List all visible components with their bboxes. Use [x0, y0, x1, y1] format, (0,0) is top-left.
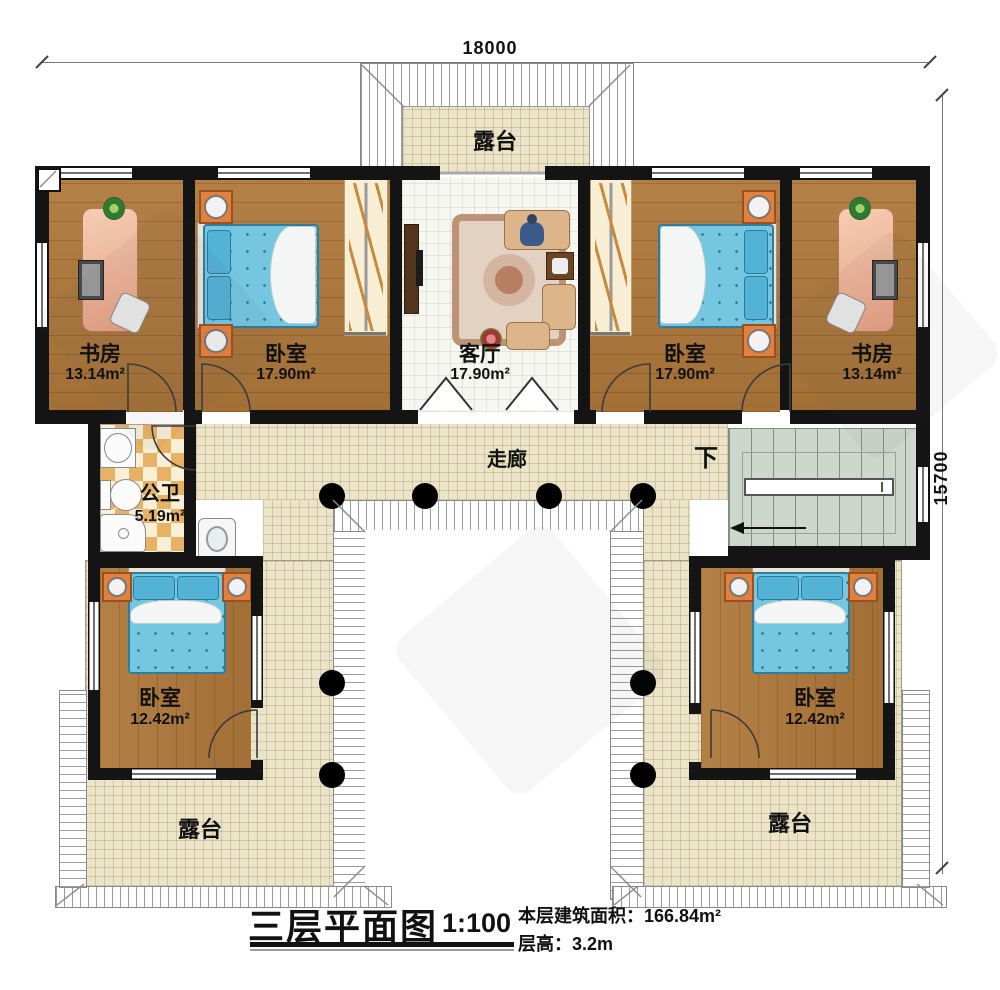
- window: [218, 166, 310, 180]
- nightstand-icon: [102, 572, 132, 602]
- bathroom-area: 5.19m²: [117, 508, 203, 526]
- floor-height-value: 3.2m: [572, 934, 613, 954]
- wall: [574, 410, 596, 424]
- wall: [251, 556, 263, 616]
- wall: [872, 166, 930, 180]
- window: [689, 612, 701, 703]
- column: [412, 483, 438, 509]
- wardrobe-left-edge: [344, 332, 386, 335]
- pillow: [744, 276, 768, 320]
- title-underline-shadow: [250, 949, 514, 951]
- corridor-label: 走廊: [447, 450, 567, 471]
- study-left-label: 书房: [40, 344, 160, 366]
- nightstand-icon: [848, 572, 878, 602]
- bedroom-lower-left-area: 12.42m²: [105, 711, 215, 729]
- courtyard-eave-top: [333, 500, 644, 532]
- dimension-right-label: 15700: [931, 430, 951, 526]
- duvet: [754, 600, 846, 624]
- nightstand-icon: [222, 572, 252, 602]
- dimension-top-label: 18000: [430, 38, 550, 58]
- pillow: [801, 576, 843, 600]
- corridor-left-leg: [263, 500, 333, 562]
- person-icon: [520, 222, 544, 246]
- wall: [883, 556, 895, 612]
- column: [630, 762, 656, 788]
- study-left-area: 13.14m²: [35, 366, 155, 384]
- nightstand-icon: [742, 190, 776, 224]
- terrace-bottom-right-label: 露台: [740, 806, 840, 838]
- wall: [689, 556, 895, 568]
- wardrobe-left: [344, 178, 388, 336]
- shower-drain: [118, 528, 129, 539]
- bedroom-lower-left-label: 卧室: [110, 688, 210, 710]
- wall: [644, 410, 742, 424]
- nightstand-icon: [724, 572, 754, 602]
- courtyard-eave-left: [333, 500, 367, 900]
- title-underline: [250, 942, 514, 947]
- floor-area-label: 本层建筑面积：: [518, 906, 644, 926]
- window: [800, 166, 872, 180]
- wall: [578, 178, 590, 410]
- window: [88, 602, 100, 690]
- pillow: [177, 576, 219, 600]
- bedroom-upper-left-label: 卧室: [226, 344, 346, 366]
- column: [536, 483, 562, 509]
- terrace-bottom-left-label: 露台: [150, 812, 250, 844]
- floor-plan: 18000 15700 露台 下: [0, 0, 1000, 990]
- wall: [780, 178, 792, 410]
- floor-height-label: 层高：: [518, 934, 572, 954]
- wall: [216, 768, 263, 780]
- floor-area-row: 本层建筑面积：166.84m²: [518, 902, 721, 928]
- drawing-scale: 1:100: [442, 908, 511, 939]
- wall: [390, 178, 402, 410]
- column: [630, 483, 656, 509]
- window: [251, 616, 263, 700]
- column: [319, 670, 345, 696]
- living-room-area: 17.90m²: [420, 366, 540, 384]
- plant-icon: [849, 197, 871, 220]
- pillow: [744, 230, 768, 274]
- nightstand-icon: [199, 190, 233, 224]
- window: [770, 768, 856, 780]
- wardrobe-right: [590, 178, 632, 336]
- stairs-down-label: 下: [694, 438, 728, 466]
- tv-icon: [416, 250, 423, 286]
- corner-notch: [37, 168, 61, 192]
- bedroom-upper-right-area: 17.90m²: [625, 366, 745, 384]
- sink-icon: [104, 433, 132, 463]
- study-right-area: 13.14m²: [812, 366, 932, 384]
- bedroom-upper-right-label: 卧室: [625, 344, 745, 366]
- side-table: [546, 252, 574, 280]
- wall: [88, 556, 263, 568]
- window: [652, 166, 744, 180]
- bedroom-upper-left-area: 17.90m²: [226, 366, 346, 384]
- window: [916, 467, 930, 522]
- pillow: [757, 576, 799, 600]
- study-right-label: 书房: [812, 344, 932, 366]
- floor-area-value: 166.84m²: [644, 906, 721, 926]
- wall: [88, 556, 100, 602]
- duvet: [130, 600, 222, 624]
- stair-handrail: [744, 478, 894, 496]
- duvet: [270, 226, 316, 324]
- wall: [88, 690, 100, 780]
- wall: [689, 556, 701, 612]
- wall: [545, 166, 652, 180]
- eave-right-side: [902, 690, 930, 888]
- wall: [310, 166, 440, 180]
- wall: [88, 768, 132, 780]
- column: [319, 483, 345, 509]
- window: [60, 166, 132, 180]
- wall: [250, 410, 418, 424]
- nightstand-icon: [742, 324, 776, 358]
- corridor-right-leg: [643, 500, 690, 562]
- window: [883, 612, 895, 703]
- plant-icon: [103, 197, 125, 220]
- wall: [916, 424, 930, 467]
- washing-machine-icon: [198, 518, 236, 560]
- pillow: [133, 576, 175, 600]
- hanger-icons: [595, 183, 627, 331]
- bathroom-label: 公卫: [122, 484, 198, 505]
- living-room-label: 客厅: [420, 344, 540, 366]
- floor-height-row: 层高：3.2m: [518, 930, 613, 956]
- terrace-top-label: 露台: [435, 124, 555, 156]
- wall: [689, 703, 701, 714]
- hanger-icons: [349, 183, 383, 331]
- wall: [856, 768, 895, 780]
- window: [132, 768, 216, 780]
- duvet: [660, 226, 706, 324]
- eave-left-side: [59, 690, 87, 888]
- wall: [251, 700, 263, 708]
- wardrobe-right-edge: [590, 332, 630, 335]
- wall: [88, 424, 100, 564]
- column: [319, 762, 345, 788]
- wall: [689, 768, 770, 780]
- wall: [132, 166, 218, 180]
- bedroom-lower-right-area: 12.42m²: [760, 711, 870, 729]
- wall: [916, 180, 930, 243]
- bedroom-lower-right-label: 卧室: [765, 688, 865, 710]
